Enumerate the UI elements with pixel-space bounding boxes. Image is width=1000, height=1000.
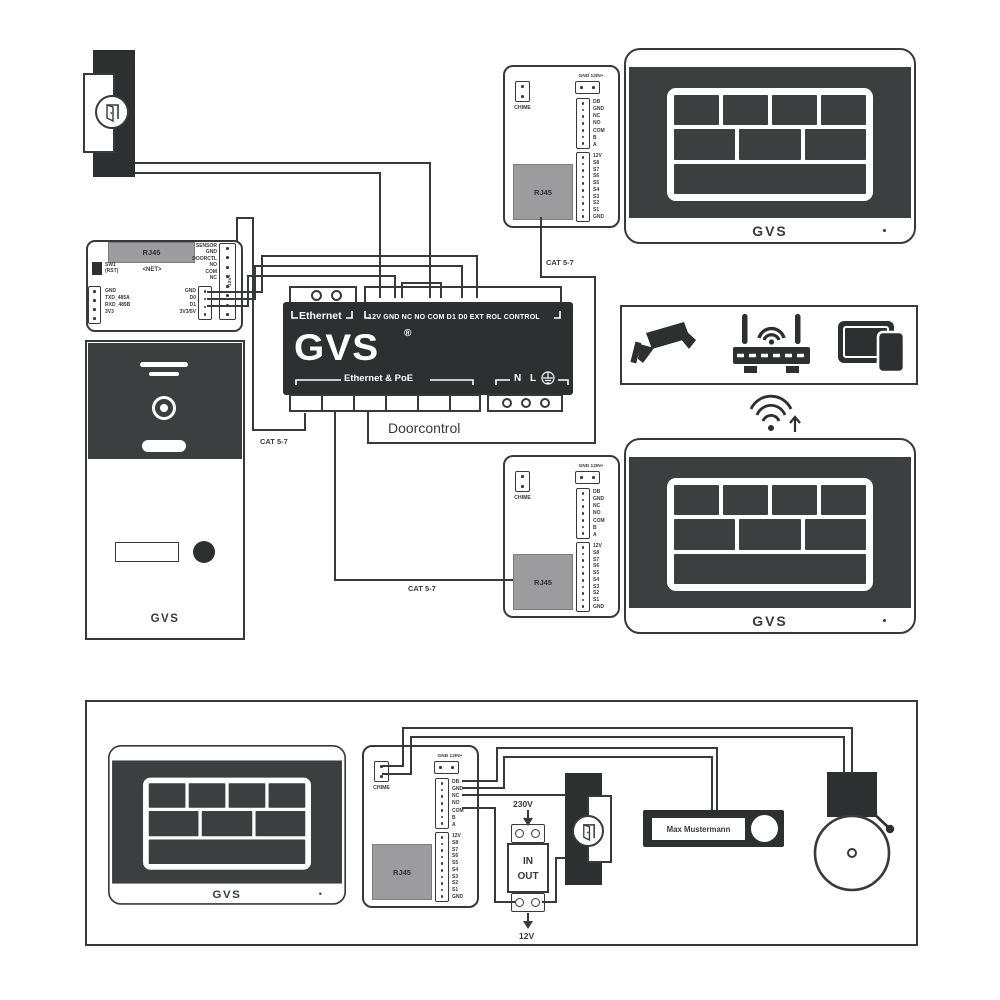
pin-label: DB bbox=[593, 99, 605, 105]
pin-dot bbox=[582, 532, 585, 535]
open-door-icon bbox=[580, 822, 597, 841]
pin-dot bbox=[582, 519, 585, 522]
indoor-monitor-frame: GVS bbox=[624, 438, 916, 634]
pin-dot bbox=[582, 163, 585, 166]
monitor-mid: GVS bbox=[624, 438, 916, 634]
pin-label: SENSOR bbox=[196, 243, 217, 249]
doorcontrol-label: Doorcontrol bbox=[388, 420, 460, 436]
indoor-station-top: CHIME GND 12IN+ DBGNDNCNOCOMBA 12VS8S7S6… bbox=[503, 65, 620, 228]
cable-label: CAT 5-7 bbox=[260, 437, 288, 446]
mains-voltage-label: 230V bbox=[513, 799, 533, 809]
pin-dot bbox=[582, 215, 585, 218]
pin-dot bbox=[582, 526, 585, 529]
psu-in-label: IN bbox=[509, 854, 547, 869]
rj45-port: RJ45 bbox=[513, 554, 573, 610]
monitor-ui-panel bbox=[667, 478, 873, 591]
pin-dot bbox=[582, 102, 585, 105]
pin-label: S3 bbox=[593, 194, 604, 200]
pin-dot bbox=[582, 156, 585, 159]
pin-dot bbox=[582, 136, 585, 139]
brand-logo: GVS bbox=[85, 613, 245, 625]
pin-dot bbox=[582, 579, 585, 582]
bus-pin-labels: DBGNDNCNOCOMBA bbox=[593, 99, 605, 148]
pin-dot bbox=[204, 290, 207, 293]
pin-label: NO bbox=[210, 262, 218, 268]
pin-label: A bbox=[593, 532, 605, 538]
pin-dot bbox=[582, 492, 585, 495]
psu-out-label: OUT bbox=[509, 869, 547, 884]
pin-dot bbox=[582, 122, 585, 125]
chime-connector bbox=[515, 471, 530, 492]
mains-terminal-hole bbox=[521, 398, 531, 408]
panel-outline bbox=[85, 700, 918, 946]
mains-n-label: N bbox=[514, 373, 521, 384]
chime-label: CHIME bbox=[506, 105, 539, 111]
monitor-top: GVS bbox=[624, 48, 916, 244]
output-voltage-label: 12V bbox=[519, 931, 534, 941]
pin-dot bbox=[582, 189, 585, 192]
pin-label: S8 bbox=[593, 160, 604, 166]
psu-terminal-hole bbox=[515, 829, 524, 838]
pin-label: S3 bbox=[593, 584, 604, 590]
pin-dot bbox=[582, 169, 585, 172]
screen-tile bbox=[674, 164, 866, 194]
pin-label: GND bbox=[593, 604, 604, 610]
cctv-camera-icon bbox=[630, 315, 712, 375]
brand-logo: GVS bbox=[626, 223, 914, 239]
speaker-slot bbox=[140, 362, 188, 367]
brand-logo: GVS bbox=[294, 327, 379, 369]
screen-tile bbox=[723, 95, 768, 125]
reset-switch bbox=[92, 262, 102, 275]
call-button[interactable] bbox=[193, 541, 215, 563]
pin-dot bbox=[582, 129, 585, 132]
screen-tile bbox=[739, 519, 800, 549]
pin-label: GND bbox=[206, 249, 217, 255]
pin-label: NC bbox=[593, 503, 605, 509]
cable-label: CAT 5-7 bbox=[408, 584, 436, 593]
pin-label: NO bbox=[593, 120, 605, 126]
pin-dot bbox=[582, 605, 585, 608]
pin-label: A bbox=[593, 142, 605, 148]
pin-label: S4 bbox=[593, 187, 604, 193]
microphone-dot bbox=[883, 619, 886, 622]
camera-lens bbox=[160, 404, 168, 412]
wifi-signal-icon bbox=[740, 388, 810, 436]
pin-dot bbox=[226, 247, 229, 250]
pin-dot bbox=[582, 182, 585, 185]
pin-dot bbox=[226, 256, 229, 259]
doorbell-push[interactable] bbox=[751, 815, 778, 842]
screen-tile bbox=[821, 485, 866, 515]
mains-terminal-hole bbox=[540, 398, 550, 408]
pin-label: S7 bbox=[593, 557, 604, 563]
pin-dot bbox=[582, 176, 585, 179]
rj45-port: RJ45 bbox=[513, 164, 573, 220]
pin-label: S4 bbox=[593, 577, 604, 583]
pin-dot bbox=[592, 86, 595, 89]
rj45-port-strip bbox=[289, 394, 481, 412]
pin-dot bbox=[582, 512, 585, 515]
pin-dot bbox=[93, 299, 96, 302]
pin-dot bbox=[226, 304, 229, 307]
pin-label: RXD_485B bbox=[105, 302, 130, 308]
pin-dot bbox=[582, 559, 585, 562]
pin-label: GND bbox=[185, 288, 196, 294]
pin-label: GND bbox=[593, 106, 605, 112]
mains-l-label: L bbox=[530, 373, 536, 384]
pin-dot bbox=[582, 109, 585, 112]
pin-label: 12V bbox=[593, 153, 604, 159]
pin-label: GND bbox=[593, 496, 605, 502]
indoor-monitor-frame: GVS bbox=[624, 48, 916, 244]
net-label: <NET> bbox=[122, 267, 182, 273]
pin-label: S7 bbox=[593, 167, 604, 173]
screen-tile bbox=[821, 95, 866, 125]
pin-dot bbox=[582, 142, 585, 145]
chime-label: CHIME bbox=[506, 495, 539, 501]
pin-dot bbox=[582, 592, 585, 595]
psu-body: IN OUT bbox=[507, 843, 549, 893]
screen-tile bbox=[805, 519, 866, 549]
pin-label: TXD_485A bbox=[105, 295, 130, 301]
pin-dot bbox=[582, 202, 585, 205]
door-release-badge bbox=[572, 815, 604, 847]
pin-label: S8 bbox=[593, 550, 604, 556]
pin-label: COM bbox=[593, 128, 605, 134]
pin-dot bbox=[204, 298, 207, 301]
pin-dot bbox=[93, 308, 96, 311]
indoor-station-mid: CHIME GND 12IN+ DBGNDNCNOCOMBA 12VS8S7S6… bbox=[503, 455, 620, 618]
pin-label: D1 bbox=[190, 302, 196, 308]
io-pin-labels: SENSORGNDDOORCTLNOCOMNC bbox=[177, 243, 217, 281]
pin-dot bbox=[521, 475, 524, 478]
pin-label: S1 bbox=[593, 597, 604, 603]
pin-dot bbox=[582, 572, 585, 575]
pin-dot bbox=[592, 476, 595, 479]
pin-dot bbox=[93, 290, 96, 293]
pin-label: S6 bbox=[593, 173, 604, 179]
pin-dot bbox=[204, 306, 207, 309]
pin-label: S5 bbox=[593, 180, 604, 186]
pin-dot bbox=[582, 209, 585, 212]
pin-label: 3V3/5V bbox=[180, 309, 196, 315]
pin-label: S6 bbox=[593, 563, 604, 569]
pin-dot bbox=[204, 313, 207, 316]
wire-poe-port2-to-mid-station bbox=[335, 412, 513, 580]
pin-dot bbox=[582, 196, 585, 199]
pin-label: COM bbox=[205, 269, 217, 275]
port-hole bbox=[331, 290, 342, 301]
bus-connector bbox=[576, 488, 590, 539]
power-label: GND 12IN+ bbox=[567, 464, 615, 469]
pin-label: DOORCTL bbox=[192, 256, 217, 262]
serial-pin-labels: GNDTXD_485ARXD_485B3V3 bbox=[105, 288, 130, 315]
pin-label: B bbox=[593, 525, 605, 531]
pin-dot bbox=[582, 546, 585, 549]
indoor-station-module: CHIME GND 12IN+ DBGNDNCNOCOMBA 12VS8S7S6… bbox=[503, 65, 620, 228]
registered-mark: ® bbox=[404, 328, 411, 339]
power-label: GND 12IN+ bbox=[567, 74, 615, 79]
power-pins-label: -12V+ bbox=[228, 266, 233, 296]
pin-dot bbox=[521, 95, 524, 98]
pin-label: GND bbox=[593, 214, 604, 220]
pin-dot bbox=[582, 566, 585, 569]
nameplate-window bbox=[115, 542, 179, 562]
screen-tile bbox=[674, 485, 719, 515]
microphone-dot bbox=[883, 229, 886, 232]
pin-dot bbox=[580, 476, 583, 479]
wifi-router-icon bbox=[728, 312, 818, 378]
bus-connector bbox=[576, 98, 590, 149]
tablet-and-phone-icon bbox=[834, 316, 908, 374]
screen-tile bbox=[772, 95, 817, 125]
psu-terminal-hole bbox=[531, 829, 540, 838]
mains-terminal-hole bbox=[502, 398, 512, 408]
network-devices-box bbox=[620, 305, 918, 385]
pin-dot bbox=[582, 599, 585, 602]
bus-connector bbox=[198, 286, 212, 320]
psu-terminal-hole bbox=[531, 898, 540, 907]
cable-label: CAT 5-7 bbox=[546, 258, 574, 267]
pin-label: GND bbox=[105, 288, 130, 294]
pin-dot bbox=[582, 505, 585, 508]
indoor-station-module: CHIME GND 12IN+ DBGNDNCNOCOMBA 12VS8S7S6… bbox=[503, 455, 620, 618]
ethernet-label: Ethernet bbox=[299, 310, 342, 322]
port-hole bbox=[311, 290, 322, 301]
pin-label: DB bbox=[593, 489, 605, 495]
bus-pin-labels: GNDD0D13V3/5V bbox=[156, 288, 196, 315]
pin-dot bbox=[582, 553, 585, 556]
pin-label: S5 bbox=[593, 570, 604, 576]
screen-tile bbox=[674, 519, 735, 549]
power-connector bbox=[575, 471, 600, 484]
doorbell-nameplate: Max Mustermann bbox=[652, 818, 745, 840]
scene-connector bbox=[576, 542, 590, 612]
pin-label: NC bbox=[593, 113, 605, 119]
pin-dot bbox=[93, 317, 96, 320]
screen-tile bbox=[723, 485, 768, 515]
pin-dot bbox=[582, 115, 585, 118]
terminal-row-labels: 12V GND NC NO COM D1 D0 EXT ROL CONTROL bbox=[368, 312, 540, 321]
psu-terminal-hole bbox=[515, 898, 524, 907]
screen-tile bbox=[772, 485, 817, 515]
brand-logo: GVS bbox=[626, 613, 914, 629]
pin-dot bbox=[582, 499, 585, 502]
screen-tile bbox=[674, 129, 735, 159]
pin-dot bbox=[521, 485, 524, 488]
serial-connector bbox=[88, 286, 101, 324]
pin-label: NC bbox=[210, 275, 217, 281]
scene-pin-labels: 12VS8S7S6S5S4S3S2S1GND bbox=[593, 153, 604, 220]
pin-label: 12V bbox=[593, 543, 604, 549]
pin-label: NO bbox=[593, 510, 605, 516]
monitor-ui-panel bbox=[667, 88, 873, 201]
pin-label: S1 bbox=[593, 207, 604, 213]
screen-tile bbox=[805, 129, 866, 159]
pin-dot bbox=[582, 586, 585, 589]
speaker-slot bbox=[149, 372, 179, 376]
pin-label: D0 bbox=[190, 295, 196, 301]
pin-label: 3V3 bbox=[105, 309, 130, 315]
scene-pin-labels: 12VS8S7S6S5S4S3S2S1GND bbox=[593, 543, 604, 610]
screen-tile bbox=[674, 95, 719, 125]
scene-connector bbox=[576, 152, 590, 222]
bell-gong-icon bbox=[805, 795, 915, 900]
pin-dot bbox=[226, 313, 229, 316]
pin-label: S2 bbox=[593, 590, 604, 596]
gvs-intercom-wiring-diagram: RJ45 <NET> SW1(RST) GNDTXD_485ARXD_485B3… bbox=[0, 0, 1000, 1000]
pin-label: S2 bbox=[593, 200, 604, 206]
switch-label: SW1(RST) bbox=[105, 262, 118, 274]
bus-pin-labels: DBGNDNCNOCOMBA bbox=[593, 489, 605, 538]
poe-label: Ethernet & PoE bbox=[344, 373, 413, 384]
pin-dot bbox=[580, 86, 583, 89]
pin-dot bbox=[521, 85, 524, 88]
open-door-icon bbox=[103, 102, 121, 122]
chime-connector bbox=[515, 81, 530, 102]
screen-tile bbox=[739, 129, 800, 159]
pin-label: B bbox=[593, 135, 605, 141]
pin-label: COM bbox=[593, 518, 605, 524]
power-connector bbox=[575, 81, 600, 94]
status-light bbox=[142, 440, 186, 452]
door-release-badge bbox=[95, 95, 129, 129]
screen-tile bbox=[674, 554, 866, 584]
